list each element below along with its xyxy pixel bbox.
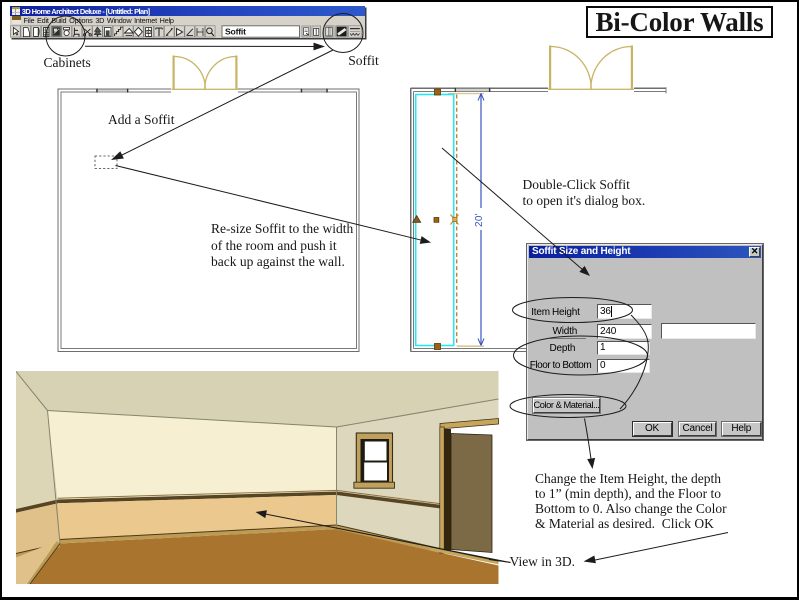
svg-text:20': 20'	[474, 213, 485, 227]
